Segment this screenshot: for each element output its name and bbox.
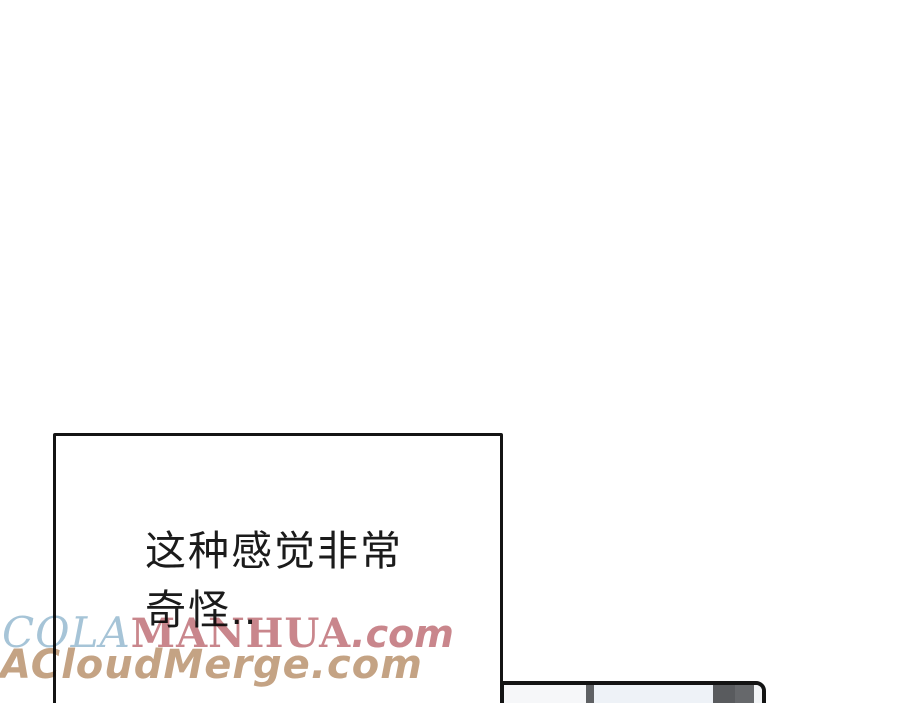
dialogue-line-1: 这种感觉非常 [145,522,403,581]
bottom-panel-dark-block-b [735,685,754,703]
bottom-panel-middle-section [594,685,713,703]
bottom-panel-dark-block-a [713,685,735,703]
comic-page: 这种感觉非常 奇怪.. COLAMANHUA.com ACloudMerge.c… [0,0,900,703]
watermark-acloudmerge: ACloudMerge.com [0,645,423,685]
bottom-panel [500,681,766,703]
bottom-panel-divider [586,685,594,703]
bottom-panel-right-strip [754,685,762,703]
